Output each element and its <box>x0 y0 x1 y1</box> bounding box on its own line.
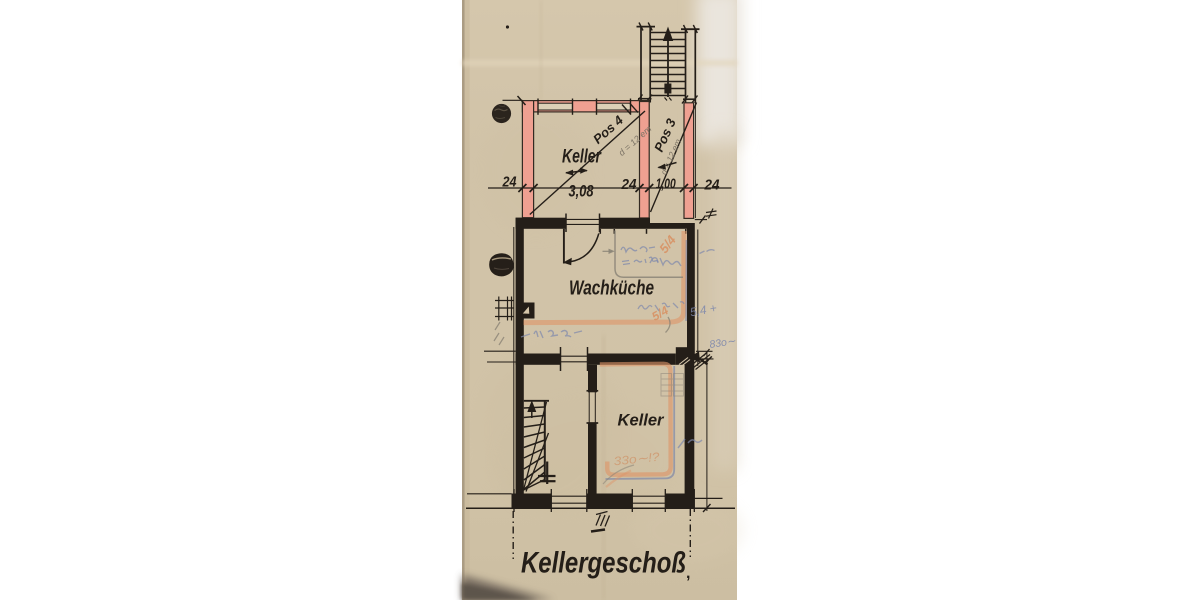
svg-text:Keller: Keller <box>562 147 602 168</box>
svg-text:1,00: 1,00 <box>656 176 676 193</box>
svg-text:3,08: 3,08 <box>569 182 594 201</box>
svg-text:24: 24 <box>704 177 720 194</box>
svg-text:,: , <box>686 565 690 582</box>
svg-text:24: 24 <box>502 174 517 191</box>
svg-text:Kellergeschoß: Kellergeschoß <box>521 547 686 580</box>
svg-text:Wachküche: Wachküche <box>569 278 654 300</box>
svg-text:24: 24 <box>621 176 637 193</box>
svg-text:Keller: Keller <box>618 411 665 430</box>
